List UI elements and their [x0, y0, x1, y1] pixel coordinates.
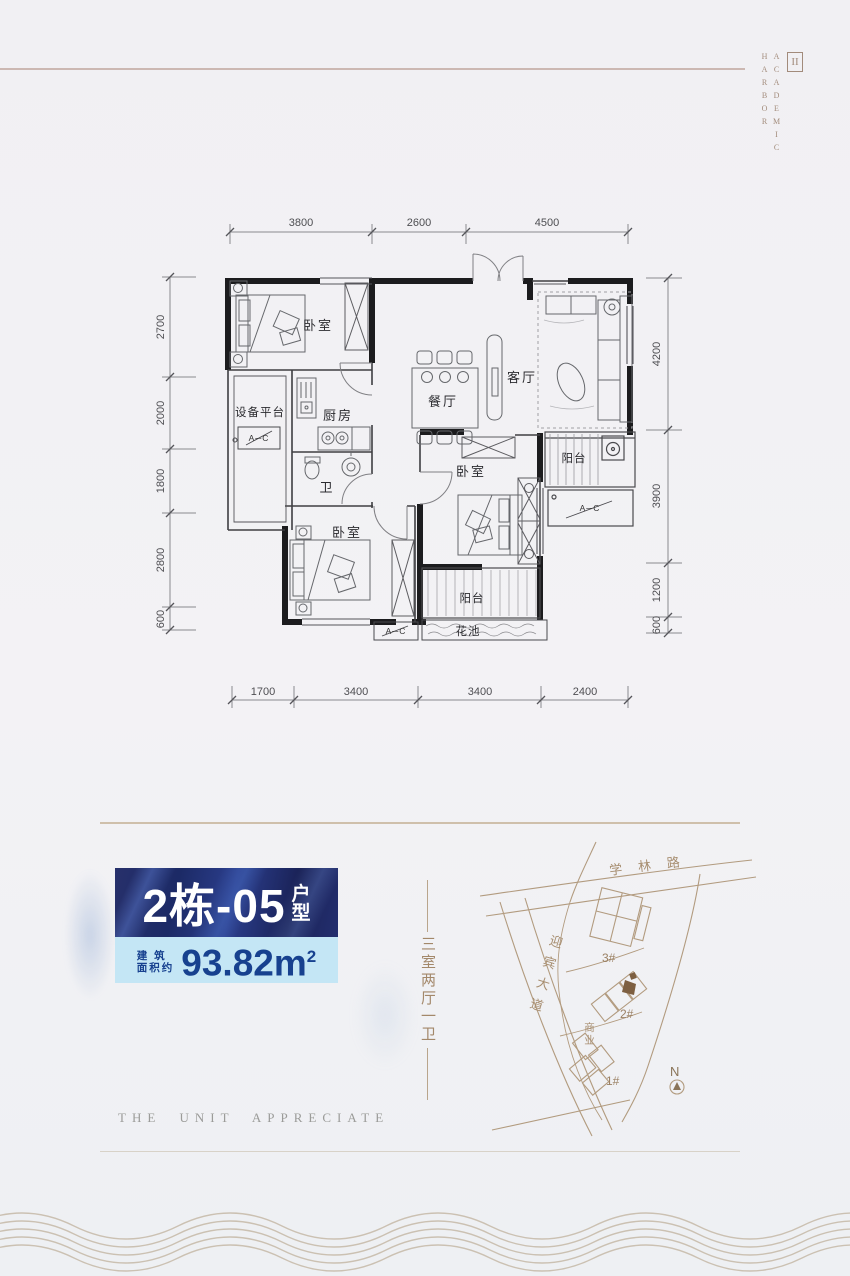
brand-mark: HARBOR ACADEMIC II [758, 52, 803, 156]
wave-decoration [0, 1186, 850, 1276]
unit-card-header: 2栋-05 户 型 [115, 868, 338, 937]
site-building-2 [591, 971, 646, 1021]
area-number: 93.82m [181, 943, 307, 984]
ac-label-right: A─C [580, 503, 601, 513]
area-prefix: 建 筑 面积约 [137, 950, 175, 974]
unit-card-area: 建 筑 面积约 93.82m2 [115, 937, 338, 983]
area-exponent: 2 [307, 947, 316, 966]
brand-word-harbor: HARBOR [758, 52, 770, 130]
room-label-dining: 餐厅 [428, 394, 458, 409]
dim-right-2: 3900 [651, 484, 663, 508]
poster-page: HARBOR ACADEMIC II 3800 2600 4500 1700 3… [0, 0, 850, 1276]
dim-top-1: 3800 [289, 217, 313, 229]
tagline-rule-top [427, 880, 428, 932]
site-marker-current [622, 972, 637, 995]
brand-word-academic: ACADEMIC [770, 52, 782, 156]
divider-line [100, 822, 740, 824]
dim-left-4: 2800 [155, 548, 167, 572]
room-label-balcony-right: 阳台 [562, 451, 587, 465]
room-label-living: 客厅 [507, 370, 537, 385]
unit-card: 2栋-05 户 型 建 筑 面积约 93.82m2 [115, 868, 338, 983]
area-prefix-line2: 面积约 [137, 962, 175, 974]
room-label-bedroom-3: 卧室 [332, 525, 362, 540]
tagline-vertical: 三室两厅一卫 [417, 936, 438, 1044]
dim-bottom-4: 2400 [573, 686, 597, 698]
brand-logo-icon: II [787, 52, 803, 72]
flower-bed [422, 620, 547, 640]
site-roads [480, 842, 756, 1136]
balcony-right [545, 432, 635, 487]
building-2-label: 2# [620, 1007, 634, 1021]
room-label-kitchen: 厨房 [323, 408, 353, 423]
dim-top-2: 2600 [407, 217, 431, 229]
dim-left-1: 2700 [155, 315, 167, 339]
ac-label-left: A─C [249, 433, 270, 443]
room-label-flower-bed: 花池 [456, 625, 481, 638]
area-value: 93.82m2 [181, 938, 316, 981]
dim-left-5: 600 [155, 610, 167, 628]
building-1-label: 1# [606, 1074, 620, 1088]
dimension-labels: 3800 2600 4500 1700 3400 3400 2400 2700 … [155, 217, 663, 698]
building-3-label: 3# [602, 951, 616, 965]
dim-bottom-2: 3400 [344, 686, 368, 698]
footer-caption: THE UNIT APPRECIATE [118, 1110, 389, 1126]
dim-right-4: 600 [651, 616, 663, 634]
top-rule-line [0, 68, 745, 70]
dim-top-3: 4500 [535, 217, 559, 229]
unit-number: 2栋-05 [142, 870, 285, 936]
unit-suffix-top: 户 [292, 885, 311, 904]
walls-light [228, 281, 568, 622]
room-label-equipment: 设备平台 [235, 405, 285, 419]
dim-right-3: 1200 [651, 578, 663, 602]
dim-left-3: 1800 [155, 469, 167, 493]
dim-right-1: 4200 [651, 342, 663, 366]
dim-left-2: 2000 [155, 401, 167, 425]
site-map: 3# 2# 1# N [480, 840, 760, 1140]
commercial-label: 商业 [582, 1022, 597, 1047]
room-label-bedroom-1: 卧室 [303, 318, 333, 333]
footer-rule-line [100, 1151, 740, 1152]
ac-label-bottom: A─C [386, 626, 407, 636]
unit-suffix-bottom: 型 [292, 904, 311, 923]
north-label: N [670, 1064, 679, 1079]
area-prefix-line1: 建 筑 [137, 950, 175, 962]
unit-type-suffix: 户 型 [292, 885, 311, 923]
room-label-bedroom-2: 卧室 [456, 464, 486, 479]
dim-bottom-3: 3400 [468, 686, 492, 698]
dim-bottom-1: 1700 [251, 686, 275, 698]
floor-plan: 3800 2600 4500 1700 3400 3400 2400 2700 … [150, 170, 690, 730]
room-label-balcony-bottom: 阳台 [460, 591, 485, 605]
room-label-bath: 卫 [319, 480, 334, 495]
tagline-rule-bottom [427, 1048, 428, 1100]
north-arrow-icon [673, 1082, 681, 1090]
